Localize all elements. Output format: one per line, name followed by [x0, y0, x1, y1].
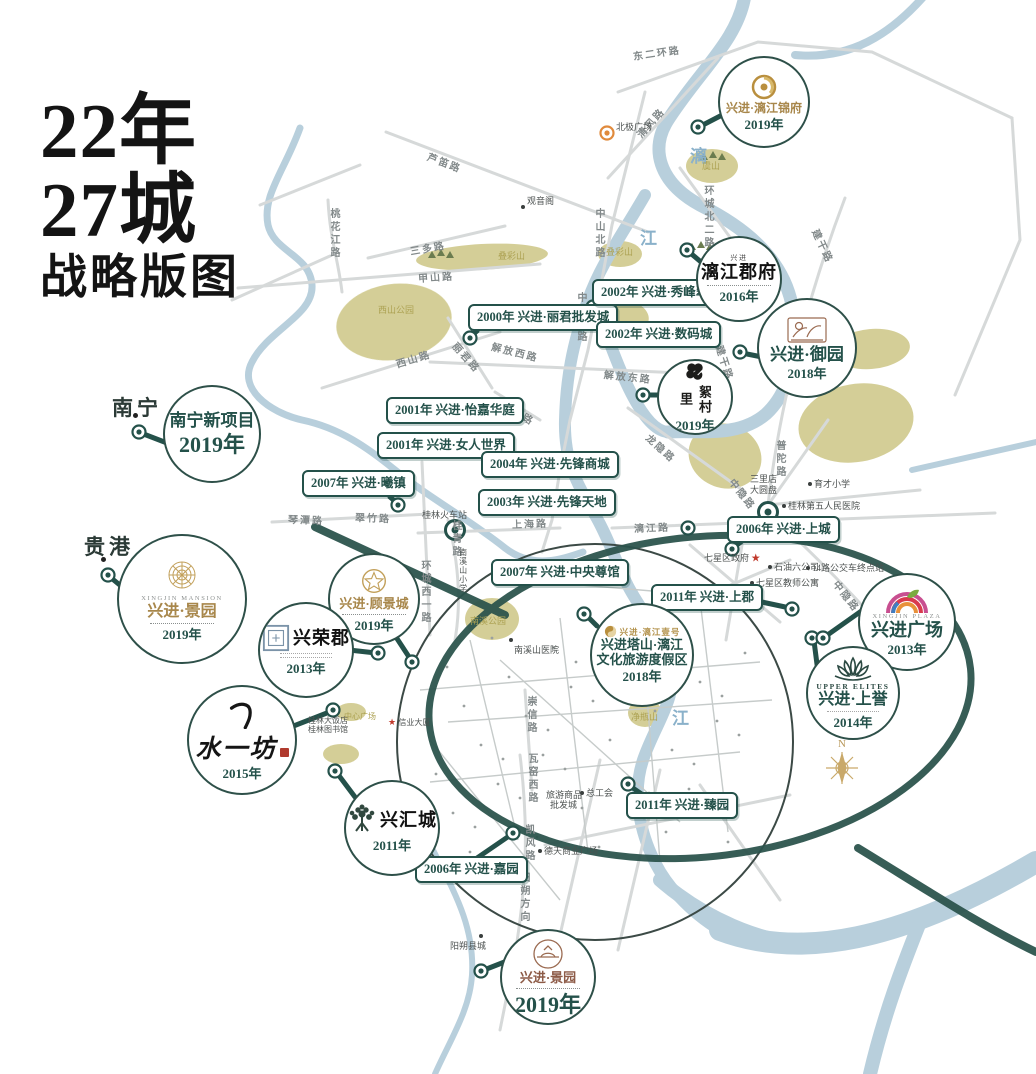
title-line-1: 22年 — [40, 92, 240, 171]
inset-building-dot — [671, 749, 674, 752]
inset-building-dot — [435, 773, 438, 776]
inset-building-dot — [463, 705, 466, 708]
etching-logo-icon — [785, 315, 829, 345]
project-name-latin: XINGJIN MANSION — [141, 595, 223, 603]
map-pin-icon — [372, 647, 385, 660]
project-year: 2013年 — [887, 643, 926, 657]
project-name: 兴进·漓江锦府 — [726, 102, 802, 116]
tree-logo-icon — [347, 803, 377, 837]
map-pin-icon — [464, 332, 477, 345]
inset-building-dot — [480, 744, 483, 747]
poi-label: 南溪公园 — [470, 616, 506, 627]
clover-logo-icon — [678, 361, 712, 382]
poi-label: 批发城 — [550, 800, 577, 811]
project-name-line2: 文化旅游度假区 — [596, 653, 687, 668]
project-name: 兴汇城 — [380, 810, 437, 831]
map-pin-icon — [692, 121, 705, 134]
project-year-label: 2006年 兴进·嘉园 — [415, 856, 528, 883]
map-pin-icon — [578, 608, 591, 621]
map-pin-icon — [327, 704, 340, 717]
inset-building-dot — [491, 637, 494, 640]
brand-name: 兴进·漓江壹号 — [620, 626, 681, 638]
poi-label: 叠彩山 — [606, 247, 633, 258]
inset-building-dot — [699, 681, 702, 684]
project-year-label: 2006年 兴进·上城 — [727, 516, 840, 543]
strategic-map-poster: 22年 27城 战略版图 N 南宁贵港漓江江2000年 兴进·丽君批发城2002… — [0, 0, 1036, 1074]
project-circle-tashan-resort: 兴进·漓江壹号兴进塔山·漓江文化旅游度假区2018年 — [590, 603, 694, 707]
poi-star-icon: ★ — [749, 553, 760, 563]
seal-logo-icon — [262, 624, 290, 652]
map-pin-icon — [786, 603, 799, 616]
project-year-label: 2007年 兴进·中央尊馆 — [491, 559, 629, 586]
map-pin-icon — [681, 244, 694, 257]
project-circle-lijiang-junfu: 兴进漓江郡府2016年 — [696, 236, 782, 322]
logo-name-row: 兴荣郡 — [262, 624, 350, 652]
poi-label: 七星区教师公寓 — [756, 578, 819, 589]
poi-label: ★ 信业大厦 — [388, 717, 430, 728]
map-pin-icon — [637, 389, 650, 402]
map-pin-icon — [133, 426, 146, 439]
project-year-label: 2007年 兴进·曦镇 — [302, 470, 415, 497]
project-circle-xingrongjun: 兴荣郡2013年 — [258, 602, 354, 698]
inset-building-dot — [519, 797, 522, 800]
poi-label: 德天商业广场 — [544, 846, 598, 857]
project-year: 2019年 — [744, 118, 783, 132]
star-emblem-logo-icon — [358, 565, 390, 597]
road-name-label: 中山北路 — [591, 208, 606, 260]
inset-building-dot — [502, 758, 505, 761]
inset-building-dot — [564, 768, 567, 771]
poi-label: 14路公交车终点站 — [812, 563, 884, 574]
inset-building-dot — [716, 720, 719, 723]
river-name-char: 江 — [640, 224, 657, 249]
project-year-label: 2011年 兴进·上郡 — [651, 584, 763, 611]
road-name-label: 崇信路 — [523, 696, 538, 735]
poi-star-icon: ★ — [388, 717, 398, 727]
project-year-label: 2001年 兴进·怡嘉华庭 — [386, 397, 524, 424]
poi-label: 中心广场 — [344, 712, 376, 722]
poi-label: 阳朔县城 — [450, 941, 486, 952]
logo-name-row: 兴汇城 — [347, 803, 437, 837]
project-circle-nanning-new: 南宁新项目2019年 — [163, 385, 261, 483]
dotted-rule — [150, 623, 214, 624]
project-year: 2011年 — [373, 839, 411, 853]
map-pin-icon — [817, 632, 830, 645]
project-circle-jingyuan-south: 兴进·景园2019年 — [500, 929, 596, 1025]
project-year: 2015年 — [222, 767, 261, 781]
project-year: 2019年 — [162, 628, 201, 642]
lotus-logo-icon — [833, 656, 873, 682]
red-seal-icon — [280, 748, 289, 757]
dotted-rule — [342, 614, 406, 615]
project-circle-xinghuicheng: 兴汇城2011年 — [344, 780, 440, 876]
inset-building-dot — [508, 676, 511, 679]
poi-dot — [479, 934, 483, 938]
city-dot — [101, 557, 106, 562]
poi-dot — [509, 638, 513, 642]
inset-building-dot — [497, 783, 500, 786]
road-name-label: 甲山路 — [417, 268, 454, 285]
inset-building-dot — [738, 734, 741, 737]
poi-dot — [538, 849, 542, 853]
road-name-label: 翠竹路 — [355, 509, 392, 525]
map-pin-icon — [734, 346, 747, 359]
brush-stroke-logo-icon — [223, 699, 261, 729]
poi-label: 桂林火车站 — [422, 510, 467, 521]
project-year: 2018年 — [787, 367, 826, 381]
round-seal-logo-icon — [531, 937, 565, 971]
project-year: 2013年 — [286, 662, 325, 676]
fine-print-rule — [280, 657, 332, 658]
mandala-logo-icon — [162, 555, 202, 595]
inset-building-dot — [547, 729, 550, 732]
project-name: 兴进广场 — [871, 620, 943, 641]
map-pin-icon — [475, 965, 488, 978]
project-circle-yuyuan: 兴进·御园2018年 — [757, 298, 857, 398]
poi-label: 西山公园 — [378, 305, 414, 316]
project-name: 兴进·上誉 — [818, 691, 887, 709]
project-name: 絮村里 — [676, 382, 714, 416]
inset-building-dot — [581, 807, 584, 810]
river-name-char: 江 — [672, 704, 689, 729]
road-name-label: 上海路 — [512, 515, 549, 531]
project-year: 2019年 — [675, 419, 714, 433]
road-name-label: 琴潭路 — [288, 511, 325, 527]
inset-building-dot — [665, 831, 668, 834]
project-circle-jingyuan-west: XINGJIN MANSION兴进·景园2019年 — [117, 534, 247, 664]
map-pin-icon — [682, 522, 695, 535]
city-label: 贵港 — [84, 531, 134, 561]
poi-label: 南溪山医院 — [514, 645, 559, 656]
gold-swirl-logo-icon — [749, 72, 779, 102]
poi-dot — [768, 565, 772, 569]
map-pin-icon — [102, 569, 115, 582]
project-year-label: 2003年 兴进·先锋天地 — [478, 489, 616, 516]
poi-label: 桂林第五人民医院 — [788, 501, 860, 512]
poi-label: 北极广场 — [616, 122, 652, 133]
map-pin-icon — [622, 778, 635, 791]
project-year: 2019年 — [515, 993, 581, 1017]
inset-building-dot — [592, 700, 595, 703]
inset-building-dot — [446, 666, 449, 669]
rivers — [248, 0, 1036, 1074]
project-name: 兴进·顾景城 — [339, 597, 408, 612]
project-year: 2014年 — [833, 716, 872, 730]
poi-label: 育才小学 — [814, 479, 850, 490]
poi-label: 桂林图书馆 — [308, 725, 348, 735]
fine-print-rule — [280, 653, 332, 654]
project-name: 兴进·景园 — [147, 603, 216, 621]
project-year-label: 2004年 兴进·先锋商城 — [481, 451, 619, 478]
project-year: 2018年 — [622, 670, 661, 684]
project-circle-shangyu: UPPER ELITES兴进·上誉2014年 — [806, 646, 900, 740]
inset-building-dot — [469, 851, 472, 854]
poi-dot — [808, 482, 812, 486]
inset-building-dot — [744, 652, 747, 655]
map-pin-icon — [392, 499, 405, 512]
dotted-rule — [707, 285, 771, 286]
project-year: 2019年 — [354, 619, 393, 633]
title-line-2: 27城 — [40, 171, 240, 250]
poi-dot — [782, 504, 786, 508]
road-name-label: 漓江路 — [634, 519, 671, 535]
project-year: 2016年 — [719, 290, 758, 304]
project-year-label: 2011年 兴进·臻园 — [626, 792, 738, 819]
project-name: 南宁新项目 — [170, 411, 255, 431]
project-name: 水一坊 — [195, 729, 288, 765]
poi-label: 三里店 — [750, 474, 777, 485]
poi-label: 净瓶山 — [631, 712, 658, 723]
inset-building-dot — [688, 788, 691, 791]
project-name: 兴荣郡 — [293, 628, 350, 649]
poi-dot — [806, 566, 810, 570]
inset-building-dot — [474, 826, 477, 829]
inset-building-dot — [609, 739, 612, 742]
map-pin-icon — [329, 765, 342, 778]
project-circle-shuiyifang: 水一坊2015年 — [187, 685, 297, 795]
poi-label: 七星区政府 ★ — [704, 553, 760, 564]
dotted-rule — [516, 988, 580, 989]
city-dot — [133, 413, 138, 418]
compass-icon — [826, 752, 858, 784]
poi-dot — [521, 205, 525, 209]
project-name: 兴进·御园 — [770, 345, 844, 365]
project-name: 兴进塔山·漓江 — [601, 638, 683, 653]
map-pin-icon — [406, 656, 419, 669]
project-circle-xucunli: 絮村里2019年 — [657, 359, 733, 435]
rainbow-logo-icon — [884, 587, 930, 613]
compass-north-label: N — [838, 738, 846, 751]
poi-label: 观音阁 — [527, 196, 554, 207]
project-year-label: 2002年 兴进·数码城 — [596, 321, 721, 348]
poi-label: 虞山 — [702, 161, 720, 172]
project-name: 兴进·景园 — [520, 971, 576, 986]
road-name-label: 环城北二路 — [700, 185, 715, 250]
title-line-3: 战略版图 — [40, 255, 240, 303]
fine-print-rule — [827, 711, 879, 712]
project-name: 漓江郡府 — [701, 262, 777, 283]
project-year: 2019年 — [179, 433, 245, 457]
poi-label: 南溪山小学 — [458, 548, 468, 593]
inset-building-dot — [693, 763, 696, 766]
inset-building-dot — [542, 754, 545, 757]
poster-title: 22年 27城 战略版图 — [40, 92, 240, 303]
roads — [232, 42, 1020, 1030]
poi-label: 总工会 — [586, 788, 613, 799]
plaza-marker-icon — [601, 127, 614, 140]
project-circle-lijiang-jinfu: 兴进·漓江锦府2019年 — [718, 56, 810, 148]
brand-seal-text: 兴进 — [730, 254, 747, 262]
poi-label: 大圆盘 — [750, 485, 777, 496]
inset-building-dot — [452, 812, 455, 815]
inset-building-dot — [727, 841, 730, 844]
inset-building-dot — [570, 686, 573, 689]
inset-building-dot — [598, 846, 601, 849]
inset-building-dot — [721, 695, 724, 698]
project-name-latin: UPPER ELITES — [816, 682, 889, 691]
inset-building-dot — [575, 661, 578, 664]
poi-label: 叠彩山 — [498, 251, 525, 262]
map-pin-icon — [507, 827, 520, 840]
road-name-label: 瓦窑西路 — [524, 753, 539, 805]
road-name-label: 桃花江路 — [326, 208, 341, 260]
